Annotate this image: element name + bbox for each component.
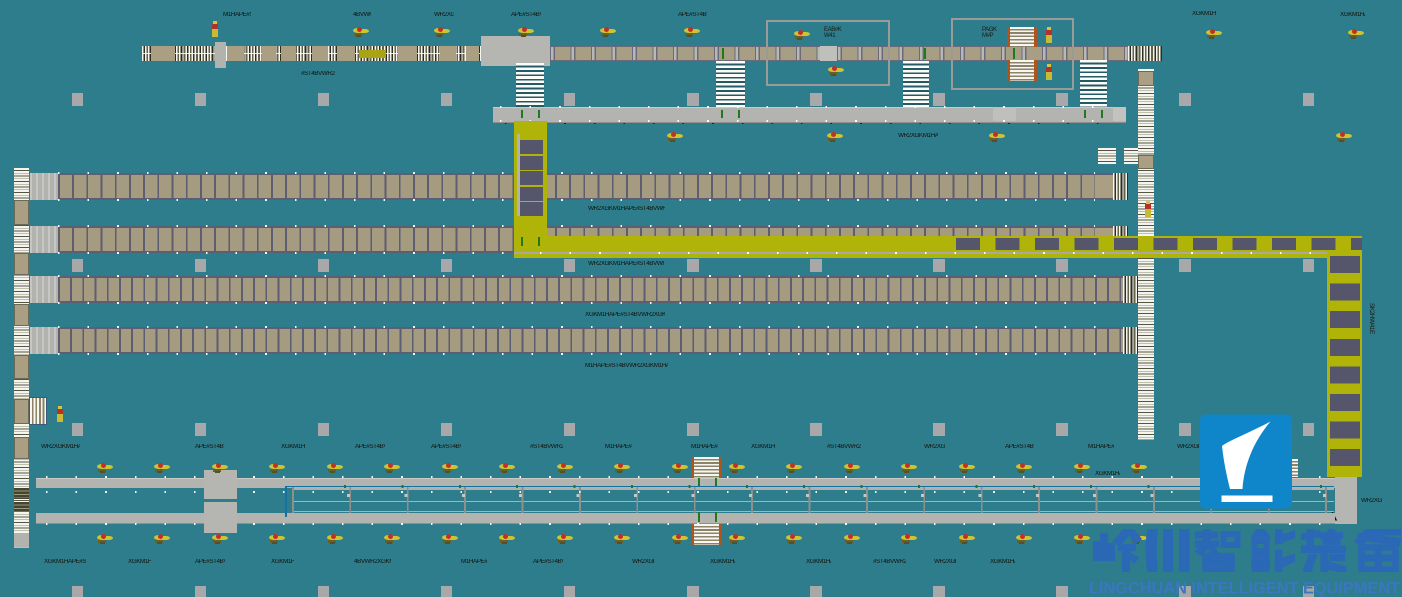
svg-text:LINGCHUAN INTELLIGENT EQUIPMEN: LINGCHUAN INTELLIGENT EQUIPMENT — [1089, 580, 1400, 597]
